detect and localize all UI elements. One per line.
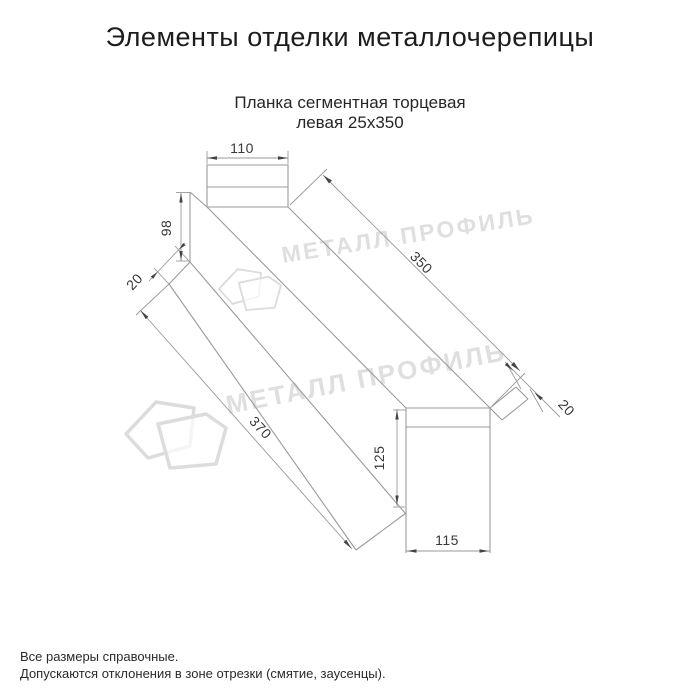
technical-drawing: МЕТАЛЛ ПРОФИЛЬ МЕТАЛЛ ПРОФИЛЬ [0, 0, 700, 700]
dim-bottom-end-width: 115 [435, 532, 459, 548]
dim-right-end-height: 125 [371, 446, 387, 471]
dim-top-flange-width: 110 [230, 140, 254, 156]
dim-top-hem: 20 [123, 270, 146, 293]
catalog-page: Элементы отделки металлочерепицы Планка … [0, 0, 700, 700]
footnote-line2: Допускаются отклонения в зоне отрезки (с… [20, 665, 386, 682]
dimension-labels: 110 98 20 350 370 20 125 115 [123, 140, 578, 548]
dim-bottom-edge-length: 370 [246, 413, 275, 442]
metall-profil-logo-icon [126, 402, 226, 468]
footnote-line1: Все размеры справочные. [20, 648, 386, 665]
dim-left-end-height: 98 [158, 220, 174, 237]
watermark-upper: МЕТАЛЛ ПРОФИЛЬ [219, 202, 537, 310]
dim-top-edge-length: 350 [407, 248, 436, 277]
watermark-text: МЕТАЛЛ ПРОФИЛЬ [223, 336, 508, 420]
metall-profil-logo-icon [219, 269, 281, 310]
watermark-lower: МЕТАЛЛ ПРОФИЛЬ [126, 336, 509, 468]
footnotes: Все размеры справочные. Допускаются откл… [20, 648, 386, 682]
